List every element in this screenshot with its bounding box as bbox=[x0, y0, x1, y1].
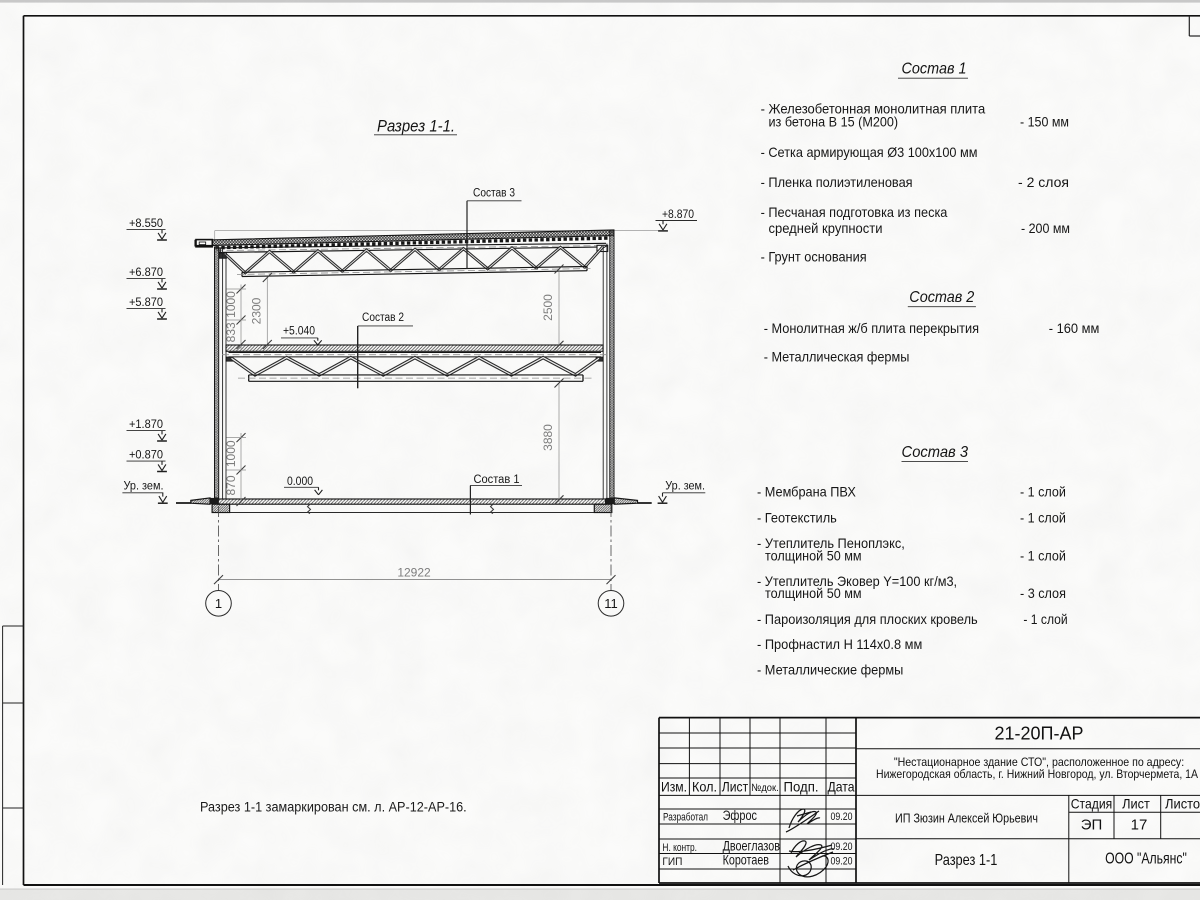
svg-text:- Металлические фермы: - Металлические фермы bbox=[757, 661, 903, 677]
svg-text:870: 870 bbox=[224, 475, 238, 495]
svg-text:Ур. зем.: Ур. зем. bbox=[124, 481, 164, 493]
svg-text:Кол.: Кол. bbox=[692, 779, 717, 795]
svg-text:- 160 мм: - 160 мм bbox=[1049, 320, 1100, 336]
svg-text:толщиной 50 мм: толщиной 50 мм bbox=[765, 547, 862, 563]
svg-text:Состав 2: Состав 2 bbox=[362, 312, 404, 324]
svg-text:Состав 1: Состав 1 bbox=[902, 61, 967, 78]
svg-text:- 1 слой: - 1 слой bbox=[1020, 510, 1066, 526]
svg-text:Дата: Дата bbox=[828, 779, 855, 795]
svg-text:- 1 слой: - 1 слой bbox=[1023, 611, 1067, 627]
svg-text:Состав 1: Состав 1 bbox=[474, 474, 520, 486]
svg-text:Эфрос: Эфрос bbox=[723, 808, 758, 823]
svg-text:Подп.: Подп. bbox=[784, 779, 819, 795]
svg-text:+5.870: +5.870 bbox=[129, 297, 163, 309]
svg-text:средней крупности: средней крупности bbox=[769, 220, 883, 236]
svg-text:№док.: №док. bbox=[751, 782, 778, 794]
svg-text:+1.870: +1.870 bbox=[129, 419, 163, 431]
svg-text:Разработал: Разработал bbox=[663, 812, 708, 824]
svg-text:11: 11 bbox=[604, 596, 618, 611]
svg-text:ЭП: ЭП bbox=[1081, 817, 1103, 834]
svg-text:- Песчаная подготовка из песка: - Песчаная подготовка из песка bbox=[761, 204, 948, 220]
svg-text:Разрез 1-1.: Разрез 1-1. bbox=[377, 118, 455, 136]
svg-text:1: 1 bbox=[215, 596, 222, 611]
svg-text:Разрез 1-1 замаркирован см. л.: Разрез 1-1 замаркирован см. л. АР-12-АР-… bbox=[200, 800, 467, 815]
svg-text:2500: 2500 bbox=[541, 294, 555, 321]
svg-text:09.20: 09.20 bbox=[831, 856, 853, 868]
svg-text:из бетона В 15 (М200): из бетона В 15 (М200) bbox=[769, 113, 899, 129]
svg-text:- Геотекстиль: - Геотекстиль bbox=[757, 510, 837, 526]
svg-text:Состав 3: Состав 3 bbox=[902, 444, 969, 461]
svg-text:- Пленка полиэтиленовая: - Пленка полиэтиленовая bbox=[761, 174, 913, 190]
svg-text:- Сетка армирующая Ø3 100х100: - Сетка армирующая Ø3 100х100 мм bbox=[761, 144, 978, 160]
svg-text:+6.870: +6.870 bbox=[129, 267, 163, 279]
svg-text:ИП Зюзин Алексей Юрьевич: ИП Зюзин Алексей Юрьевич bbox=[895, 811, 1038, 825]
svg-text:17: 17 bbox=[1131, 817, 1148, 834]
svg-text:Разрез 1-1: Разрез 1-1 bbox=[935, 852, 998, 869]
svg-text:толщиной 50 мм: толщиной 50 мм bbox=[765, 585, 862, 601]
svg-text:- Мембрана ПВХ: - Мембрана ПВХ bbox=[757, 484, 856, 500]
svg-text:1000: 1000 bbox=[224, 291, 238, 318]
svg-text:0.000: 0.000 bbox=[287, 476, 313, 488]
svg-text:Лист: Лист bbox=[722, 779, 749, 795]
svg-text:09.20: 09.20 bbox=[831, 811, 853, 823]
svg-text:21-20П-АР: 21-20П-АР bbox=[995, 724, 1084, 744]
svg-text:Лист: Лист bbox=[1122, 796, 1150, 812]
svg-text:Коротаев: Коротаев bbox=[723, 853, 769, 868]
svg-text:Двоеглазов: Двоеглазов bbox=[723, 839, 780, 854]
svg-text:Листов: Листов bbox=[1165, 796, 1200, 812]
svg-text:Нижегородская область, г. Нижн: Нижегородская область, г. Нижний Новгоро… bbox=[876, 767, 1198, 781]
svg-text:Состав 3: Состав 3 bbox=[473, 188, 515, 200]
svg-text:- Профнастил Н 114х0.8 мм: - Профнастил Н 114х0.8 мм bbox=[757, 636, 922, 652]
svg-text:3880: 3880 bbox=[541, 424, 555, 451]
svg-text:- Металлическая фермы: - Металлическая фермы bbox=[764, 349, 910, 365]
svg-text:833: 833 bbox=[224, 322, 238, 342]
svg-text:+0.870: +0.870 bbox=[129, 450, 163, 462]
svg-text:+8.870: +8.870 bbox=[662, 209, 694, 221]
svg-text:- Монолитная ж/б плита перекры: - Монолитная ж/б плита перекрытия bbox=[764, 320, 979, 336]
svg-text:- 200 мм: - 200 мм bbox=[1021, 220, 1070, 236]
svg-text:- 3 слоя: - 3 слоя bbox=[1020, 585, 1066, 601]
svg-text:Ур. зем.: Ур. зем. bbox=[665, 481, 705, 493]
svg-text:- Пароизоляция для плоских кро: - Пароизоляция для плоских кровель bbox=[757, 611, 978, 627]
svg-text:09.20: 09.20 bbox=[831, 841, 853, 853]
svg-text:- 1 слой: - 1 слой bbox=[1020, 547, 1066, 563]
svg-text:- 150 мм: - 150 мм bbox=[1020, 113, 1069, 129]
svg-text:Изм.: Изм. bbox=[661, 779, 687, 795]
svg-text:Стадия: Стадия bbox=[1071, 796, 1113, 812]
svg-text:2300: 2300 bbox=[250, 297, 264, 324]
svg-text:ГИП: ГИП bbox=[662, 856, 682, 868]
svg-text:Н. контр.: Н. контр. bbox=[662, 842, 697, 854]
svg-text:+8.550: +8.550 bbox=[129, 218, 163, 230]
svg-text:1000: 1000 bbox=[224, 440, 238, 467]
svg-text:- Грунт основания: - Грунт основания bbox=[761, 249, 867, 265]
svg-text:12922: 12922 bbox=[397, 565, 431, 579]
svg-text:ООО "Альянс": ООО "Альянс" bbox=[1105, 851, 1187, 868]
svg-text:- 2 слоя: - 2 слоя bbox=[1018, 174, 1069, 190]
svg-text:- 1 слой: - 1 слой bbox=[1020, 484, 1066, 500]
svg-text:Состав 2: Состав 2 bbox=[909, 289, 974, 306]
svg-text:+5.040: +5.040 bbox=[283, 325, 315, 337]
